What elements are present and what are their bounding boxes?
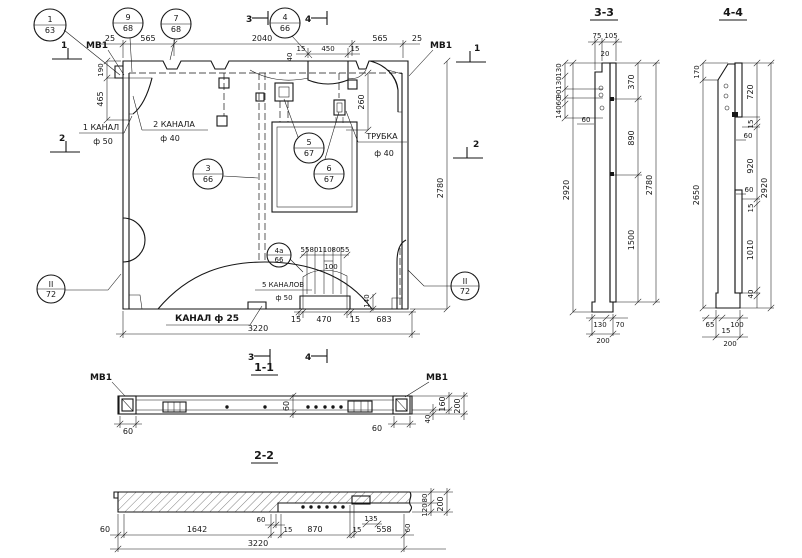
mark-3-top: 3 [246, 15, 252, 25]
mark-1-left: 1 [61, 41, 67, 51]
callout-sheet: 72 [460, 287, 470, 296]
left-dimensions: 190 465 [96, 58, 129, 123]
dim-55-a: 55 [301, 246, 310, 254]
dim-60-wall: 60 [582, 116, 591, 124]
dim-40-top: 40 [286, 53, 294, 62]
dim-80-a: 80 [310, 246, 319, 254]
rebar-dot [724, 84, 728, 88]
dim-1010: 1010 [746, 240, 755, 260]
callout-sheet: 63 [45, 26, 55, 35]
mark-2-left: 2 [59, 134, 65, 144]
s44-facing-upper [735, 63, 742, 117]
dim-60-right-s11: 60 [372, 424, 382, 433]
s22-hatch [118, 492, 410, 512]
left-pocket-curve [133, 78, 152, 114]
dim-40-s44: 40 [747, 290, 755, 299]
dim-60-a: 60 [744, 132, 753, 140]
dim-60-stack: 60 [555, 97, 563, 106]
section-1-1: 1-1 МВ1 МВ1 60 [90, 361, 468, 436]
dim-3220-s22: 3220 [248, 539, 268, 548]
embed-anchor [217, 116, 227, 126]
bottom-left-foot [129, 295, 142, 309]
dim-130-b: 130 [555, 76, 563, 89]
dim-140-s33: 140 [555, 105, 563, 118]
embed-anchor-large-inner [279, 87, 289, 97]
dim-450: 450 [321, 45, 334, 53]
dim-60-right-s22: 60 [404, 524, 412, 533]
callout-9-68: 9 68 [113, 8, 143, 72]
dim-890: 890 [627, 130, 636, 145]
dim-75: 75 [593, 32, 602, 40]
callout-num: 6 [326, 164, 331, 173]
callout-sheet: 72 [46, 290, 56, 299]
s44-facing-lower [735, 190, 742, 293]
dim-110: 110 [318, 246, 331, 254]
dim-120-s22: 120 [421, 503, 429, 516]
dim-2780-s33: 2780 [645, 175, 654, 195]
dim-25-right: 25 [412, 34, 422, 43]
embed-plate [348, 401, 372, 412]
dim-15-b: 15 [351, 45, 360, 53]
callout-num: 1 [47, 15, 52, 24]
label-trubka-dia: ф 40 [374, 149, 394, 158]
top-opening-right-sweep [348, 70, 366, 79]
dim-160-s11: 160 [438, 396, 447, 411]
callout-5-67: 5 67 [284, 99, 324, 163]
dim-1642: 1642 [187, 525, 207, 534]
rebar-dot [724, 94, 728, 98]
mark-4-top: 4 [305, 15, 311, 25]
dim-720: 720 [746, 84, 755, 99]
mark-1-right: 1 [474, 44, 480, 54]
mv1-label-right: МВ1 [430, 41, 452, 51]
dim-60-mid-s11: 60 [282, 401, 291, 411]
end-block-diag [122, 399, 133, 411]
callout-num: 3 [205, 164, 210, 173]
dim-2920-s33: 2920 [562, 180, 571, 200]
dim-65: 65 [706, 321, 715, 329]
callout-num: II [49, 280, 54, 289]
dim-683: 683 [376, 315, 391, 324]
callout-num: 4 [282, 13, 287, 22]
dim-3220: 3220 [248, 324, 268, 333]
callout-num: 5 [306, 138, 311, 147]
rebar-dot [725, 106, 729, 110]
dim-15-a: 15 [297, 45, 306, 53]
dim-70: 70 [616, 321, 625, 329]
dim-135: 135 [364, 515, 377, 523]
dim-140: 140 [363, 294, 371, 307]
end-block-diag [396, 399, 407, 411]
callout-sheet: 66 [203, 175, 213, 184]
callout-6-67: 6 67 [314, 112, 344, 189]
callout-num: 4а [275, 247, 284, 255]
right-pocket-curve [370, 61, 398, 112]
label-kanal2: 2 КАНАЛА [153, 120, 195, 129]
mv1-label-left-s11: МВ1 [90, 373, 112, 383]
rebar-dot [599, 93, 603, 97]
callout-sheet: 66 [275, 256, 284, 264]
section-4-4-dims: 170 2650 720 15 920 15 1010 40 60 60 292… [692, 60, 774, 348]
dim-870: 870 [307, 525, 322, 534]
dim-15-b-s22: 15 [353, 526, 362, 534]
left-edge-bulge [123, 218, 145, 262]
dim-1500: 1500 [627, 230, 636, 250]
dim-2040: 2040 [252, 34, 272, 43]
tube [334, 100, 345, 115]
right-corner-pocket [388, 70, 402, 112]
dim-15-a-s22: 15 [284, 526, 293, 534]
dim-2780-group: 2780 [410, 58, 450, 312]
dim-15-b-s44: 15 [747, 204, 755, 213]
dim-558: 558 [376, 525, 391, 534]
dim-55-b: 55 [341, 246, 350, 254]
dim-60-step: 60 [257, 516, 266, 524]
bundle-foot [300, 296, 350, 309]
section-4-4: 4-4 170 2650 720 15 920 15 1010 [692, 6, 774, 348]
embed-anchor-large [275, 83, 293, 101]
dim-565-left: 565 [140, 34, 155, 43]
dim-15-c: 15 [291, 315, 301, 324]
dim-100-s44: 100 [730, 321, 743, 329]
top-opening [308, 61, 348, 84]
embed-anchor [256, 93, 264, 101]
section-1-1-title: 1-1 [254, 361, 274, 374]
s33-joint-a [610, 97, 614, 101]
channel-labels: 1 КАНАЛ ф 50 2 КАНАЛА ф 40 ТРУБКА ф 40 5… [79, 96, 407, 325]
dim-15-d: 15 [350, 315, 360, 324]
dim-2920-s44: 2920 [760, 178, 769, 198]
section-3-3-dims: 75 105 20 130 130 90 60 140 60 2920 370 … [555, 32, 660, 345]
label-trubka: ТРУБКА [365, 132, 398, 141]
dim-130-foot: 130 [593, 321, 606, 329]
mv1-right-leader [409, 50, 433, 76]
callout-num: 9 [125, 13, 130, 22]
dim-100: 100 [324, 263, 337, 271]
callout-7-68: 7 68 [161, 9, 191, 60]
dim-2780: 2780 [436, 178, 445, 198]
s22-left-key [114, 492, 118, 498]
callout-sheet: 66 [280, 24, 290, 33]
dim-170: 170 [693, 65, 701, 78]
callout-II-72-right: II 72 [408, 270, 479, 300]
s33-joint-b [610, 172, 614, 176]
label-kanal1: 1 КАНАЛ [83, 123, 119, 132]
callout-sheet: 68 [123, 24, 133, 33]
dim-15-c-s44: 15 [722, 327, 731, 335]
embed-anchor [348, 80, 357, 89]
label-kanal5: 5 КАНАЛОВ [262, 281, 304, 289]
dim-200-s11: 200 [453, 398, 462, 413]
channel-bundle [303, 270, 347, 296]
dim-565-right: 565 [372, 34, 387, 43]
center-opening-inner [277, 127, 352, 207]
main-elevation-view: 1 63 9 68 7 68 4 66 3 66 [34, 8, 486, 363]
dim-105: 105 [604, 32, 617, 40]
section-2-2-title: 2-2 [254, 449, 274, 462]
rebar-dot [599, 86, 603, 90]
s44-joint [732, 112, 738, 117]
rebar-dot [600, 106, 604, 110]
left-corner-pocket [129, 78, 152, 114]
s22-strand-dots [301, 505, 344, 508]
dim-130-a: 130 [555, 63, 563, 76]
callout-sheet: 67 [324, 175, 334, 184]
s44-concrete-body [716, 64, 740, 308]
dim-40-s11: 40 [424, 415, 432, 424]
label-kanal2-dia: ф 40 [160, 134, 180, 143]
dim-2650: 2650 [692, 185, 701, 205]
mark-2-right: 2 [473, 140, 479, 150]
dim-260-group: 260 [346, 70, 371, 133]
dim-470: 470 [316, 315, 331, 324]
dim-15-a-s44: 15 [747, 120, 755, 129]
section-3-3-title: 3-3 [594, 6, 614, 19]
drawing-canvas: 1 63 9 68 7 68 4 66 3 66 [0, 0, 802, 558]
dim-20: 20 [601, 50, 610, 58]
label-kanal1-dia: ф 50 [93, 137, 113, 146]
dim-60-left-s11: 60 [123, 427, 133, 436]
callout-sheet: 68 [171, 25, 181, 34]
dim-190: 190 [97, 63, 105, 76]
callout-num: 7 [173, 14, 178, 23]
callout-num: II [463, 277, 468, 286]
dim-920: 920 [746, 158, 755, 173]
callout-3-66: 3 66 [193, 159, 258, 189]
dim-370: 370 [627, 74, 636, 89]
dim-200-s33: 200 [596, 337, 609, 345]
dim-80-b: 80 [332, 246, 341, 254]
dim-60-left-s22: 60 [100, 525, 110, 534]
label-kanal25: КАНАЛ ф 25 [175, 314, 239, 324]
callout-sheet: 67 [304, 149, 314, 158]
dim-200-s44: 200 [723, 340, 736, 348]
dim-200-s22: 200 [436, 496, 445, 511]
center-opening-outer [272, 122, 357, 212]
section-2-2: 2-2 60 1642 60 15 870 [100, 449, 453, 552]
dim-465: 465 [96, 91, 105, 106]
dim-25-left: 25 [105, 34, 115, 43]
callout-4a-66: 4а 66 [267, 243, 303, 272]
label-kanal5-dia: ф 50 [275, 294, 292, 302]
dim-80-s22: 80 [421, 494, 429, 503]
tube-inner [337, 103, 342, 112]
mv1-label-right-s11: МВ1 [426, 373, 448, 383]
mv1-left-leader [108, 50, 124, 75]
embed-plate [163, 402, 186, 412]
drawing-sheet: 1 63 9 68 7 68 4 66 3 66 [0, 0, 802, 558]
section-3-3: 3-3 75 105 20 130 130 90 60 140 60 [555, 6, 660, 345]
dim-260: 260 [357, 94, 366, 109]
callout-II-72-left: II 72 [37, 274, 121, 303]
bottom-dimensions: 15 470 15 683 3220 [116, 309, 420, 338]
top-dimensions: 25 565 2040 565 25 15 450 15 40 [100, 34, 422, 61]
dim-60-b: 60 [745, 186, 754, 194]
section-4-4-title: 4-4 [723, 6, 743, 19]
mark-4-bottom: 4 [305, 353, 311, 363]
left-small-foot [248, 302, 266, 309]
